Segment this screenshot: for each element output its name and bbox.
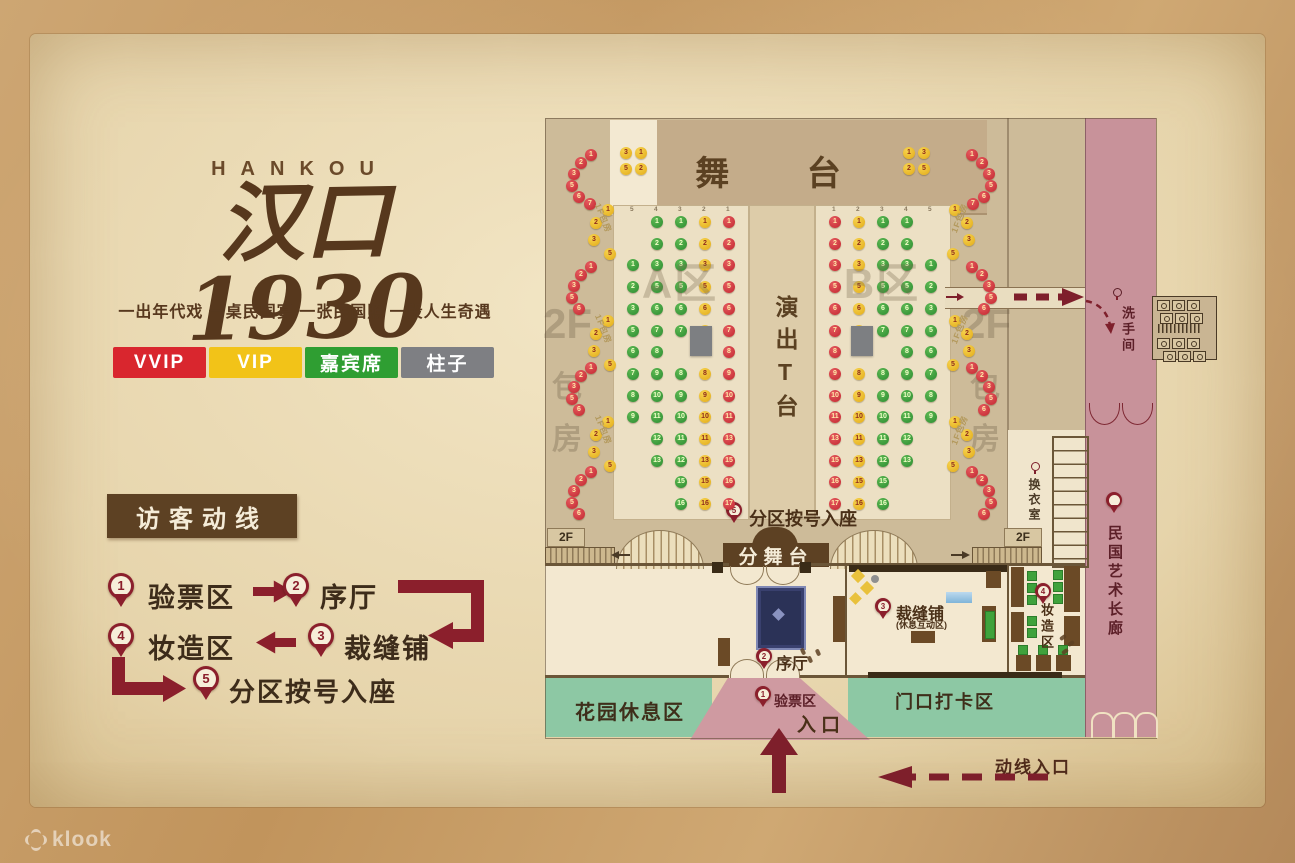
dashed-curve-arrow [1086,301,1110,325]
flow-arrows-overlay [0,0,1295,863]
watermark: klook [28,828,112,852]
entrance-arrow [772,752,786,793]
seating-map-poster: { "brand": { "latin": "HANKOU", "name": … [0,0,1295,863]
klook-wordmark: klook [52,828,112,852]
klook-flower-icon [28,832,44,848]
